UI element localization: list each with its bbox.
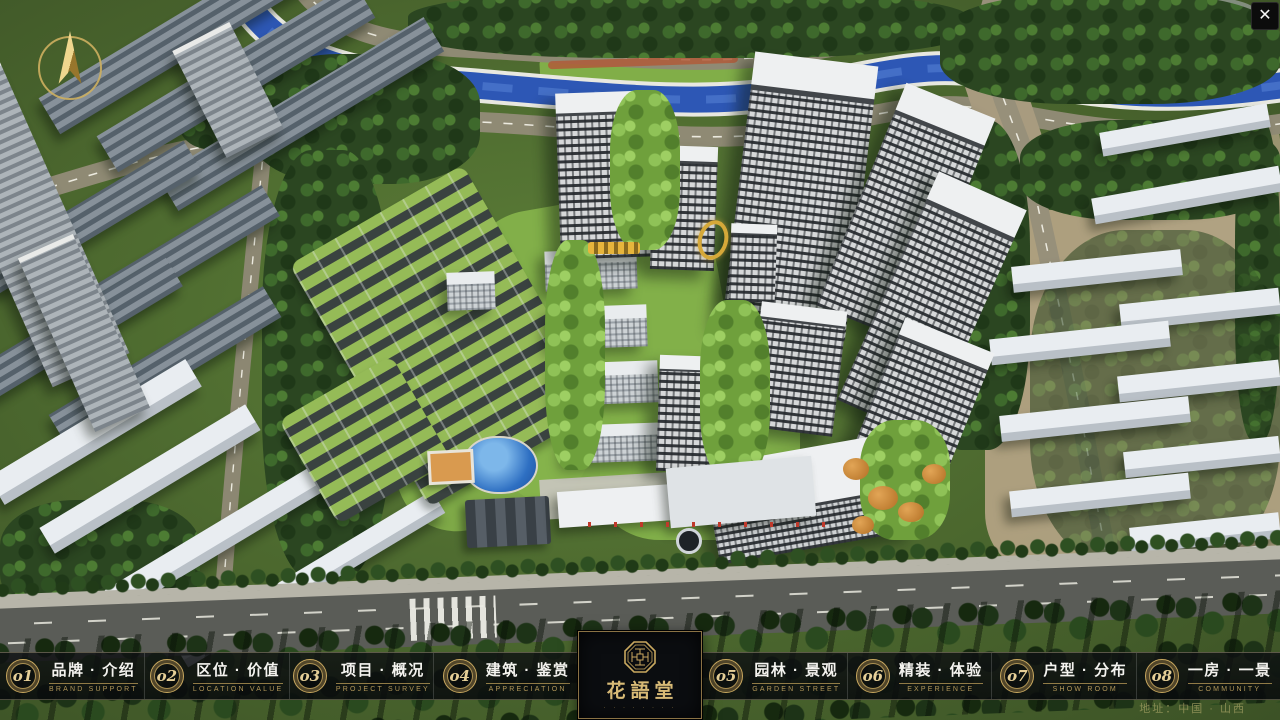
tower xyxy=(729,223,778,303)
clubhouse xyxy=(427,449,475,485)
number-badge: o8 xyxy=(1145,659,1179,693)
nav-item-location-value[interactable]: o2 区位 · 价值 LOCATION VALUE xyxy=(145,653,290,699)
tree-patch xyxy=(610,90,680,250)
nav-labels: 品牌 · 介绍 BRAND SUPPORT xyxy=(49,659,138,693)
nav-labels: 建筑 · 鉴赏 APPRECIATION xyxy=(486,659,570,693)
number-badge: o3 xyxy=(293,659,327,693)
flag-row xyxy=(588,522,838,527)
nav-item-brand-intro[interactable]: o1 品牌 · 介绍 BRAND SUPPORT xyxy=(0,653,145,699)
number-badge: o7 xyxy=(1000,659,1034,693)
autumn-tree xyxy=(898,502,924,522)
nav-group-left: o1 品牌 · 介绍 BRAND SUPPORT o2 区位 · 价值 LOCA… xyxy=(0,653,578,699)
nav-subtitle: GARDEN STREET xyxy=(752,683,840,693)
aerial-masterplan-render xyxy=(0,0,1280,720)
nav-title: 一房 · 一景 xyxy=(1188,659,1272,680)
project-address: 地址：中国 · 山西 xyxy=(1139,700,1246,716)
apartment-block xyxy=(446,271,495,311)
nav-labels: 精装 · 体验 EXPERIENCE xyxy=(899,659,983,693)
nav-title: 园林 · 景观 xyxy=(752,659,840,680)
shuttle-carts xyxy=(588,242,640,254)
nav-item-garden-landscape[interactable]: o5 园林 · 景观 GARDEN STREET xyxy=(702,653,848,699)
project-logo[interactable]: 花語堂 · · · · · · · · xyxy=(578,631,702,719)
nav-item-floorplan-distribution[interactable]: o7 户型 · 分布 SHOW ROOM xyxy=(992,653,1137,699)
seal-icon xyxy=(623,640,657,674)
nav-title: 项目 · 概况 xyxy=(336,659,430,680)
nav-item-room-view[interactable]: o8 一房 · 一景 COMMUNITY xyxy=(1137,653,1280,699)
swimming-pool xyxy=(464,436,538,494)
close-button[interactable]: ✕ xyxy=(1251,2,1279,30)
nav-subtitle: BRAND SUPPORT xyxy=(49,683,138,693)
nav-number: o8 xyxy=(1152,667,1172,685)
entrance-building xyxy=(666,456,817,528)
nav-title: 品牌 · 介绍 xyxy=(49,659,138,680)
nav-item-interior-experience[interactable]: o6 精装 · 体验 EXPERIENCE xyxy=(848,653,993,699)
nav-item-project-survey[interactable]: o3 项目 · 概况 PROJECT SURVEY xyxy=(290,653,435,699)
nav-labels: 户型 · 分布 SHOW ROOM xyxy=(1043,659,1127,693)
nav-title: 户型 · 分布 xyxy=(1043,659,1127,680)
nav-subtitle: COMMUNITY xyxy=(1188,683,1272,693)
nav-subtitle: EXPERIENCE xyxy=(899,683,983,693)
number-badge: o4 xyxy=(443,659,477,693)
autumn-tree xyxy=(852,516,874,534)
nav-number: o6 xyxy=(863,667,883,685)
number-badge: o6 xyxy=(856,659,890,693)
nav-title: 建筑 · 鉴赏 xyxy=(486,659,570,680)
nav-title: 区位 · 价值 xyxy=(193,659,283,680)
compass-north-icon xyxy=(28,26,112,110)
tree-patch xyxy=(940,0,1280,104)
nav-subtitle: LOCATION VALUE xyxy=(193,683,283,693)
nav-labels: 园林 · 景观 GARDEN STREET xyxy=(752,659,840,693)
nav-title: 精装 · 体验 xyxy=(899,659,983,680)
nav-number: o5 xyxy=(716,667,736,685)
autumn-tree xyxy=(843,458,869,480)
nav-number: o3 xyxy=(300,667,320,685)
nav-labels: 一房 · 一景 COMMUNITY xyxy=(1188,659,1272,693)
nav-subtitle: SHOW ROOM xyxy=(1043,683,1127,693)
close-icon: ✕ xyxy=(1258,7,1271,24)
tree-patch xyxy=(545,240,605,470)
nav-number: o1 xyxy=(13,667,33,685)
tree-patch xyxy=(700,300,770,480)
nav-number: o4 xyxy=(449,667,469,685)
gate-emblem xyxy=(676,528,702,554)
nav-labels: 项目 · 概况 PROJECT SURVEY xyxy=(336,659,430,693)
number-badge: o2 xyxy=(150,659,184,693)
nav-subtitle: PROJECT SURVEY xyxy=(336,683,430,693)
nav-item-architecture[interactable]: o4 建筑 · 鉴赏 APPRECIATION xyxy=(434,653,578,699)
nav-group-right: o5 园林 · 景观 GARDEN STREET o6 精装 · 体验 EXPE… xyxy=(702,653,1280,699)
presentation-screen: ✕ o1 品牌 · 介绍 BRAND SUPPORT o2 区位 · 价值 LO… xyxy=(0,0,1280,720)
autumn-tree xyxy=(922,464,946,484)
nav-labels: 区位 · 价值 LOCATION VALUE xyxy=(193,659,283,693)
number-badge: o1 xyxy=(6,659,40,693)
nav-subtitle: APPRECIATION xyxy=(486,683,570,693)
pavilion xyxy=(465,496,551,548)
number-badge: o5 xyxy=(709,659,743,693)
autumn-tree xyxy=(868,486,898,510)
nav-number: o2 xyxy=(157,667,177,685)
nav-number: o7 xyxy=(1007,667,1027,685)
project-logo-caption: · · · · · · · · xyxy=(604,705,677,711)
tree-patch xyxy=(408,0,968,58)
project-logo-name: 花語堂 xyxy=(601,676,678,703)
bottom-nav: o1 品牌 · 介绍 BRAND SUPPORT o2 区位 · 价值 LOCA… xyxy=(0,652,1280,700)
